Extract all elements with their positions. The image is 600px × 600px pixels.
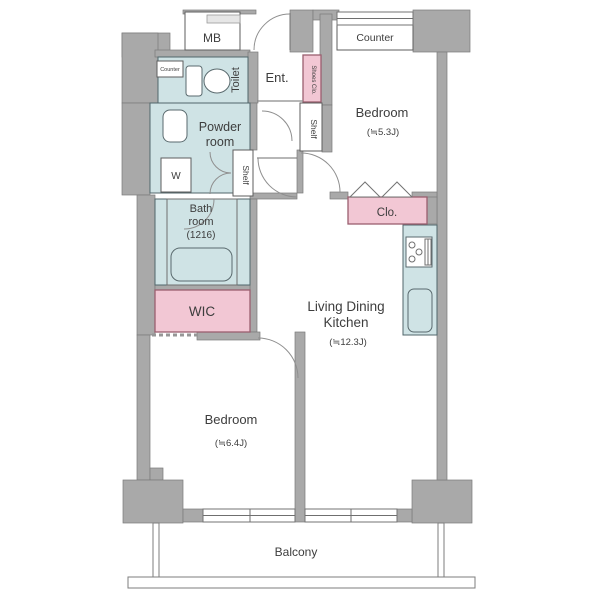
wall-stub-right-of-door (290, 10, 313, 52)
shelf-hall-label: Shelf (309, 119, 319, 139)
wall-left-bath-wic (137, 195, 155, 335)
powder-label-2: room (206, 135, 234, 149)
shelf-powder-label: Shelf (241, 165, 251, 185)
closet-label: Clo. (377, 207, 397, 219)
wall-bedroom1-door-jamb (297, 150, 303, 193)
wic-label: WIC (189, 304, 215, 319)
wall-window-stub-right (397, 509, 412, 522)
wall-bedroom1-bottom-left-stub (330, 192, 348, 199)
closet-folding-door-right (382, 182, 412, 197)
water-heater-box (207, 15, 240, 23)
closet-folding-door-left (350, 182, 380, 197)
wall-bath-wic-divider (155, 285, 250, 290)
wall-left-of-bedroom1-upper (320, 14, 332, 105)
bedroom2-door-arc (258, 338, 298, 378)
column-bottom-left (123, 480, 183, 523)
wall-toilet-ent (248, 52, 258, 103)
toilet-label: Toilet (230, 67, 242, 93)
wall-clo-right (427, 197, 437, 224)
toilet-tank (186, 66, 202, 96)
bath-label-2: room (188, 216, 213, 228)
balcony-rail-left (153, 523, 159, 577)
bath-label-3: (1216) (187, 230, 216, 241)
wall-top-right-block (413, 10, 470, 52)
balcony-rail-bottom (128, 577, 475, 588)
bedroom1-door-arc (301, 153, 340, 192)
ldk-label-1: Living Dining (307, 299, 384, 314)
front-door-arc (254, 14, 290, 50)
mb-label: MB (203, 31, 221, 45)
balcony-rail-right (438, 523, 444, 577)
bathtub (171, 248, 232, 281)
ldk-label-2: Kitchen (323, 315, 368, 330)
counter-label: Counter (356, 32, 394, 44)
powder-sink (163, 110, 187, 142)
wall-left-bedroom2 (137, 335, 150, 480)
kitchen-sink (408, 289, 432, 332)
toilet-bowl (204, 69, 230, 93)
column-bottom-right (412, 480, 472, 523)
bedroom1-label: Bedroom (356, 105, 409, 120)
wall-bedroom2-ldk-divider (295, 332, 305, 522)
wall-powder-corridor (250, 103, 257, 150)
wall-right (437, 52, 447, 480)
wall-over-toilet (155, 50, 250, 57)
wall-left-powder (122, 103, 150, 195)
balcony-label: Balcony (275, 545, 318, 559)
shoes-closet-label: Shoes Clo. (310, 65, 316, 95)
wall-window-stub-left (183, 509, 203, 522)
wall-bedroom2-top (197, 332, 260, 340)
bedroom2-size-label: (≒6.4J) (215, 438, 247, 449)
wall-left-notch (150, 468, 163, 480)
wall-left-of-bedroom1-lower (322, 105, 332, 152)
hall-door-arc (258, 158, 297, 197)
floor-plan: MB Counter Counter Toilet Ent. Shoes Clo… (0, 0, 600, 600)
powder-label-1: Powder (199, 120, 241, 134)
wall-top-left-block (122, 33, 158, 103)
entrance-label: Ent. (265, 70, 288, 85)
washer-label: W (171, 171, 181, 182)
bedroom2-label: Bedroom (205, 412, 258, 427)
ldk-size-label: (≒12.3J) (329, 337, 367, 348)
wall-bath-ldk (250, 199, 257, 332)
bath-label-1: Bath (190, 203, 213, 215)
toilet-counter-label: Counter (160, 67, 180, 73)
toilet-door-arc (262, 111, 292, 141)
floor-plan-page: MB Counter Counter Toilet Ent. Shoes Clo… (0, 0, 600, 600)
bedroom1-size-label: (≒5.3J) (367, 127, 399, 138)
